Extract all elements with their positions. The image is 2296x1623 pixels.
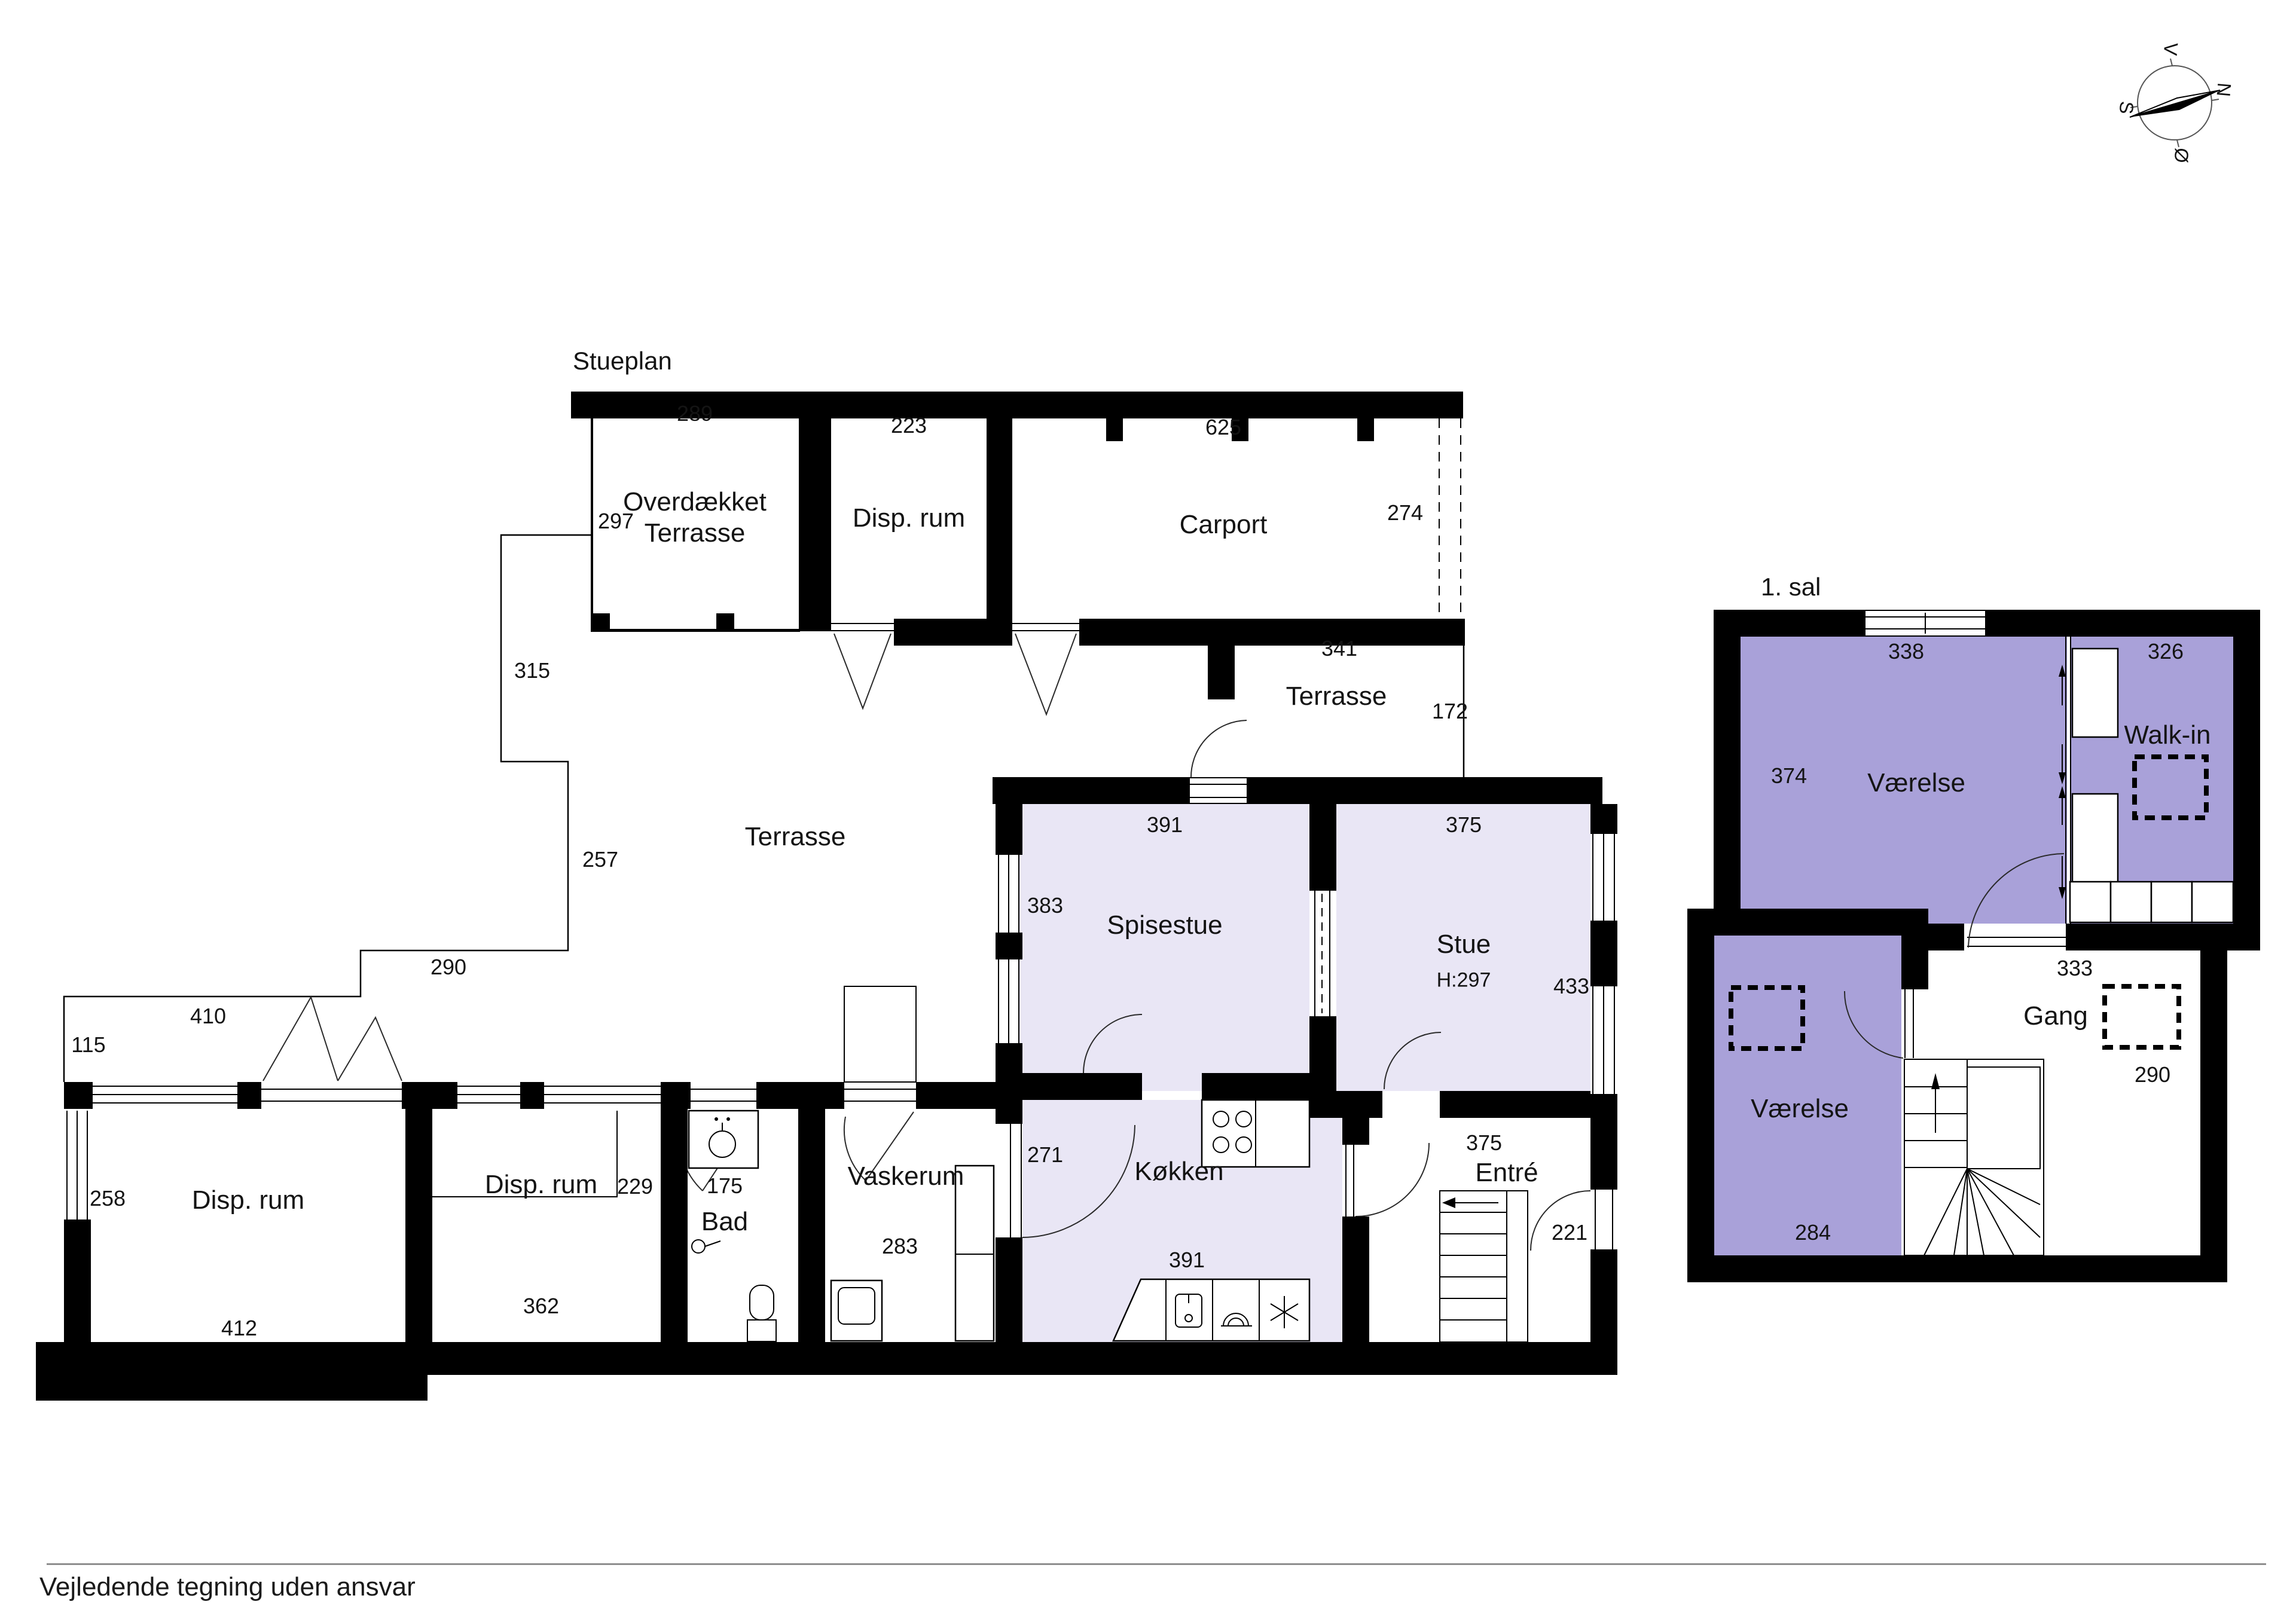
dim-383: 383 [1027,893,1063,918]
room-walkin: Walk-in [2124,720,2210,750]
dim-433: 433 [1553,974,1589,999]
stair-arrow [1442,1197,1455,1208]
room-bad: Bad [701,1207,748,1237]
room-terrasse-main: Terrasse [745,822,846,852]
dim-257: 257 [582,847,618,872]
footer-divider [47,1563,2266,1565]
first-floor-title: 1. sal [1761,573,1821,601]
dim-326: 326 [2148,639,2184,664]
dim-289: 289 [677,401,713,426]
gang-staircase [1904,1059,2044,1255]
room-entre: Entré [1475,1158,1538,1188]
dim-341: 341 [1321,636,1357,661]
floor-plan-page: Stueplan 1. sal 289 223 625 274 297 Over… [0,0,2296,1623]
dim-290: 290 [430,955,466,980]
first-floor [1687,610,2260,1282]
dim-391-bottom: 391 [1169,1248,1205,1273]
dim-391-top: 391 [1147,812,1183,838]
dim-172: 172 [1432,699,1468,724]
dim-258: 258 [90,1186,126,1211]
room-fill-spisestue [1019,804,1309,1091]
dim-338: 338 [1888,639,1924,664]
room-vaerelse-top: Værelse [1867,768,1965,798]
dim-271: 271 [1027,1142,1063,1167]
room-stue-height: H:297 [1437,969,1491,992]
dim-221: 221 [1552,1220,1587,1245]
compass-north-label: N [2212,82,2236,97]
dim-375-entre: 375 [1466,1130,1502,1156]
room-vaerelse-bottom: Værelse [1751,1094,1849,1124]
dim-315: 315 [514,658,550,683]
toilet-icon [747,1285,776,1341]
dim-290-gang: 290 [2135,1062,2170,1087]
vaskerum-cabinet [955,1166,994,1341]
dim-223: 223 [891,413,927,438]
dim-115: 115 [71,1032,105,1057]
dim-229: 229 [617,1174,653,1199]
floor-plan-drawing [0,0,2296,1623]
dim-362: 362 [523,1294,559,1319]
skylight-gang [2105,986,2179,1047]
dim-410: 410 [190,1004,226,1029]
room-disp-top: Disp. rum [853,503,965,533]
room-spisestue: Spisestue [1107,910,1222,940]
footer-disclaimer: Vejledende tegning uden ansvar [39,1572,416,1602]
dim-333: 333 [2057,956,2093,981]
faucet-icon [692,1240,720,1253]
dim-283: 283 [882,1234,918,1259]
room-terrasse-upper: Terrasse [1286,681,1387,711]
washing-machine-icon [831,1280,882,1341]
dim-374: 374 [1771,763,1807,788]
compass-east-label: Ø [2169,147,2193,164]
compass-south-label: S [2115,100,2138,115]
room-disp-left: Disp. rum [192,1185,304,1215]
compass-west-label: V [2159,42,2182,56]
dim-274: 274 [1387,500,1423,525]
room-carport: Carport [1180,510,1268,540]
dim-625: 625 [1205,415,1241,440]
terrace-outline [64,535,591,1082]
room-overdaekket-line2: Terrasse [645,518,746,548]
room-disp-mid: Disp. rum [485,1170,597,1200]
dim-175: 175 [707,1173,743,1199]
compass [2130,59,2220,147]
stueplan-top-block [571,392,1465,777]
room-stue: Stue [1437,930,1491,959]
entre-staircase [1440,1191,1528,1342]
dim-284: 284 [1795,1220,1831,1245]
dim-375-top: 375 [1446,812,1482,838]
room-koekken: Køkken [1134,1157,1223,1187]
room-gang: Gang [2023,1001,2088,1031]
room-overdaekket-line1: Overdækket [623,487,767,517]
room-vaskerum: Vaskerum [848,1162,964,1191]
dim-412: 412 [221,1316,257,1341]
stueplan-title: Stueplan [573,347,672,375]
